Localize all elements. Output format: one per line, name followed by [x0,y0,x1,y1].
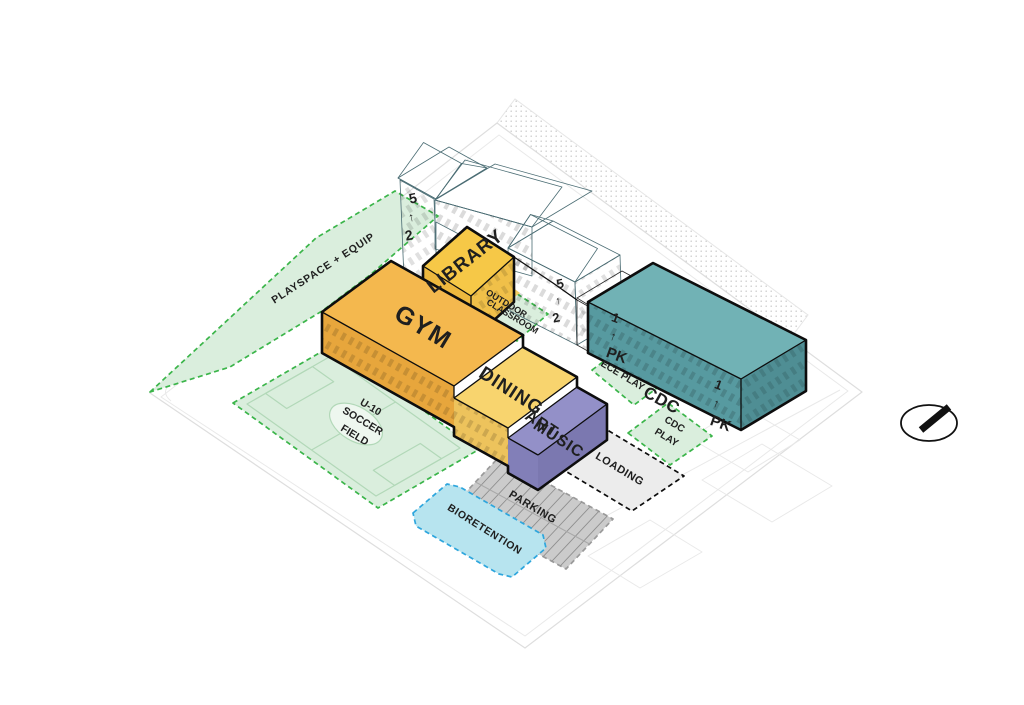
context-footprint [588,520,702,588]
context-footprint [702,444,832,522]
existing-west-pavilion-roof-end [436,164,487,200]
axonometric-site-plan: PLAYSPACE + EQUIP U-10 SOCCER FIELD OUTD… [0,0,1024,705]
site-plan-canvas: PLAYSPACE + EQUIP U-10 SOCCER FIELD OUTD… [0,0,1024,705]
north-arrow [901,405,957,441]
cdc-building [588,263,806,430]
